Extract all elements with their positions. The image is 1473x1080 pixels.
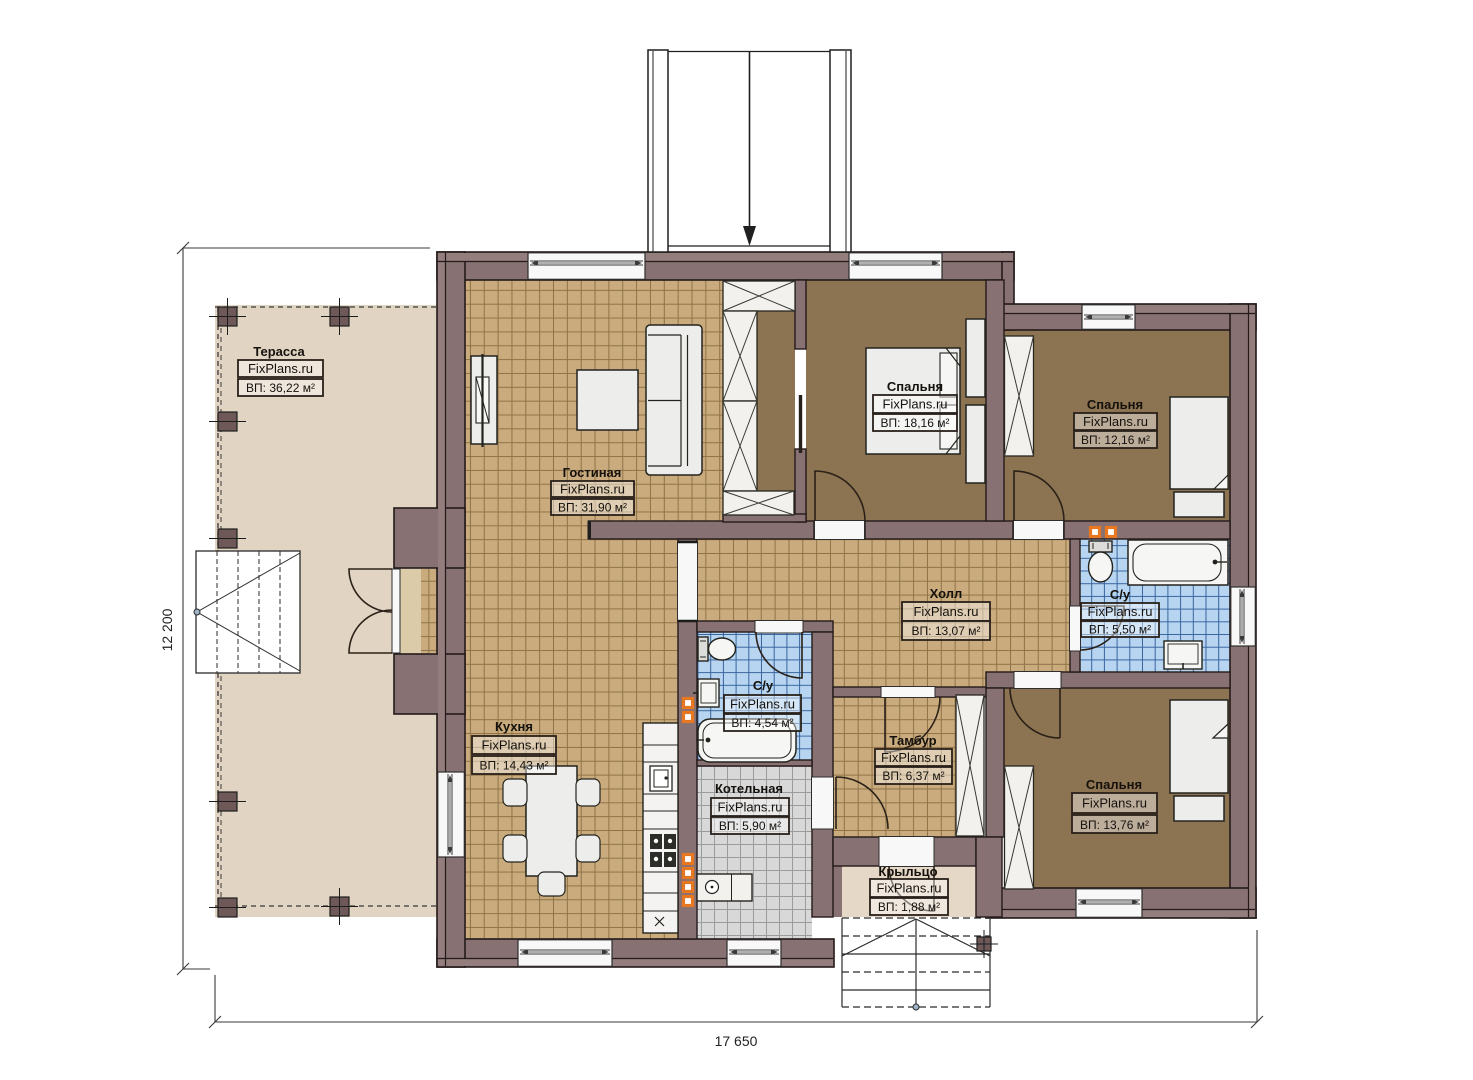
svg-text:Спальня: Спальня <box>887 379 943 394</box>
svg-text:Терасса: Терасса <box>253 344 305 359</box>
svg-text:ВП: 6,37 м²: ВП: 6,37 м² <box>882 769 944 783</box>
svg-text:FixPlans.ru: FixPlans.ru <box>481 738 546 753</box>
svg-text:FixPlans.ru: FixPlans.ru <box>717 800 782 815</box>
svg-text:С/у: С/у <box>753 678 774 693</box>
svg-text:FixPlans.ru: FixPlans.ru <box>913 604 978 619</box>
svg-text:Котельная: Котельная <box>715 781 783 796</box>
svg-text:Спальня: Спальня <box>1086 777 1142 792</box>
svg-text:ВП: 5,90 м²: ВП: 5,90 м² <box>719 819 781 833</box>
svg-text:ВП: 18,16 м²: ВП: 18,16 м² <box>881 416 950 430</box>
svg-text:FixPlans.ru: FixPlans.ru <box>1082 796 1147 811</box>
svg-text:Тамбур: Тамбур <box>889 733 936 748</box>
svg-text:FixPlans.ru: FixPlans.ru <box>560 482 625 497</box>
svg-text:FixPlans.ru: FixPlans.ru <box>1083 414 1148 429</box>
svg-text:Гостиная: Гостиная <box>563 465 622 480</box>
svg-text:FixPlans.ru: FixPlans.ru <box>248 361 313 376</box>
svg-text:ВП: 5,50 м²: ВП: 5,50 м² <box>1089 623 1151 637</box>
svg-text:FixPlans.ru: FixPlans.ru <box>882 397 947 412</box>
svg-text:FixPlans.ru: FixPlans.ru <box>1087 604 1152 619</box>
svg-text:ВП: 13,07 м²: ВП: 13,07 м² <box>912 624 981 638</box>
svg-text:ВП: 1,88 м²: ВП: 1,88 м² <box>878 900 940 914</box>
svg-text:ВП: 13,76 м²: ВП: 13,76 м² <box>1080 818 1149 832</box>
svg-text:ВП: 4,54 м²: ВП: 4,54 м² <box>731 716 793 730</box>
svg-text:Холл: Холл <box>930 586 963 601</box>
svg-text:17 650: 17 650 <box>715 1033 758 1049</box>
svg-text:Спальня: Спальня <box>1087 397 1143 412</box>
svg-text:FixPlans.ru: FixPlans.ru <box>881 750 946 765</box>
svg-text:FixPlans.ru: FixPlans.ru <box>876 881 941 896</box>
svg-text:ВП: 12,16 м²: ВП: 12,16 м² <box>1081 433 1150 447</box>
svg-text:FixPlans.ru: FixPlans.ru <box>730 697 795 712</box>
svg-text:ВП: 14,43 м²: ВП: 14,43 м² <box>480 759 549 773</box>
svg-text:С/у: С/у <box>1110 587 1131 602</box>
svg-text:ВП: 31,90 м²: ВП: 31,90 м² <box>558 501 627 515</box>
svg-text:ВП: 36,22 м²: ВП: 36,22 м² <box>246 381 315 395</box>
svg-text:12 200: 12 200 <box>159 608 175 651</box>
svg-text:Крыльцо: Крыльцо <box>878 864 937 879</box>
svg-text:Кухня: Кухня <box>495 719 533 734</box>
